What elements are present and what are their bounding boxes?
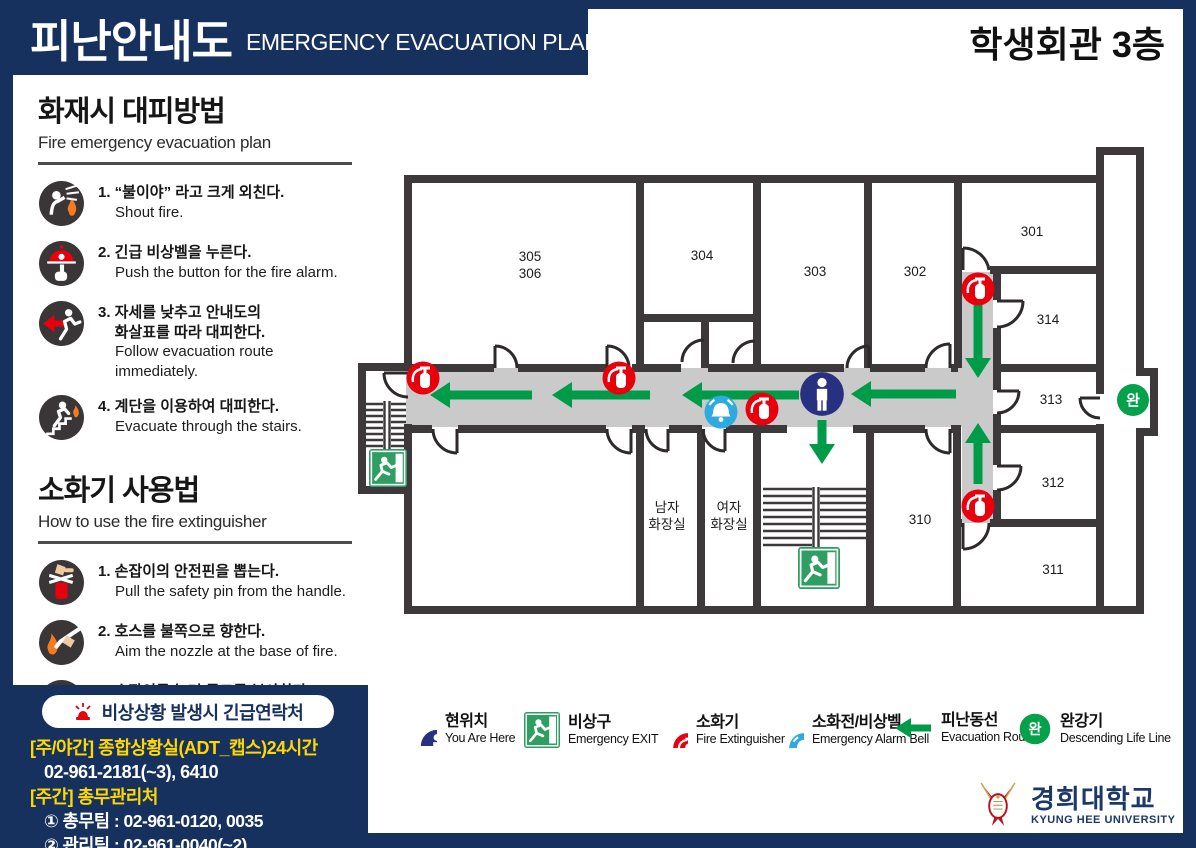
contact-item: ② 관리팀 : 02-961-0040(~2) <box>44 833 368 848</box>
step-text-en: Evacuate through the stairs. <box>115 417 302 437</box>
svg-text:완: 완 <box>1028 721 1042 738</box>
emergency-exit-icon <box>369 449 407 487</box>
room-label: 304 <box>691 248 714 263</box>
legend-life-line: 완 완강기 Descending Life Line <box>1018 712 1171 746</box>
divider <box>38 162 352 165</box>
alarm-bell-icon <box>705 396 738 429</box>
evacuation-route-arrows <box>430 303 991 484</box>
legend-label-kr: 완강기 <box>1060 713 1171 731</box>
legend-label-en: Emergency EXIT <box>568 732 658 746</box>
emergency-exit-icon <box>524 712 560 748</box>
life-line-icon: 완 <box>1018 712 1052 746</box>
room-label: 306 <box>519 266 542 281</box>
legend-fire-extinguisher: 소화기 Fire Extinguisher <box>652 712 785 748</box>
legend-label-en: You Are Here <box>445 731 515 745</box>
contact-items: ① 총무팀 : 02-961-0120, 0035 ② 관리팀 : 02-961… <box>30 809 368 848</box>
evacuation-step-3: 3. 자세를 낮추고 안내도의 화살표를 따라 대피한다. Follow eva… <box>38 300 352 381</box>
life-line-icon: 완 <box>1117 384 1149 416</box>
room-label: 312 <box>1042 475 1065 490</box>
you-are-here-icon <box>403 712 437 746</box>
step-text-en: Follow evacuation route immediately. <box>115 342 352 381</box>
extinguisher-step-1: 1. 손잡이의 안전핀을 뽑는다. Pull the safety pin fr… <box>38 559 352 606</box>
contact-line2-label: [주간] 총무관리처 <box>30 785 368 809</box>
fire-extinguisher-icon <box>407 362 440 395</box>
fire-extinguisher-icon <box>962 273 995 306</box>
step-text-en: Push the button for the fire alarm. <box>115 263 338 283</box>
contact-item: ① 총무팀 : 02-961-0120, 0035 <box>44 809 368 833</box>
legend-label-kr: 비상구 <box>568 714 658 732</box>
evacuation-step-1: 1. “불이야” 라고 크게 외친다. Shout fire. <box>38 180 352 227</box>
step-text-en: Shout fire. <box>115 203 284 223</box>
stair-treads-bottom <box>763 487 866 547</box>
route-arrow-icon <box>893 716 933 740</box>
fire-extinguisher-icon <box>962 490 995 523</box>
step-text-kr: 4. 계단을 이용하여 대피한다. <box>98 397 302 417</box>
fire-extinguisher-icon <box>652 712 688 748</box>
contact-line1-label: [주/야간] 종합상황실(ADT_캡스)24시간 <box>30 736 368 760</box>
evacuation-guide-title: 화재시 대피방법 <box>38 88 352 130</box>
room-label: 화장실 <box>710 517 747 532</box>
you-are-here-icon <box>800 372 844 416</box>
room-label: 311 <box>1042 562 1064 577</box>
room-label: 314 <box>1037 312 1060 327</box>
floor-plan: 완 305 306 304 303 302 301 314 313 312 31… <box>355 140 1167 640</box>
sidebar: 화재시 대피방법 Fire emergency evacuation plan … <box>38 88 352 754</box>
step-text-kr: 3. 자세를 낮추고 안내도의 화살표를 따라 대피한다. <box>98 303 352 342</box>
legend-evacuation-route: 피난동선 Evacuation Route <box>893 712 1035 744</box>
room-label: 310 <box>909 512 932 527</box>
siren-icon <box>73 702 93 722</box>
emergency-exit-icon <box>798 547 840 589</box>
evacuation-step-2: 2. 긴급 비상벨을 누른다. Push the button for the … <box>38 240 352 287</box>
room-label: 남자 <box>655 500 680 515</box>
step-text-kr: 1. “불이야” 라고 크게 외친다. <box>98 183 284 203</box>
legend-label-kr: 현위치 <box>445 713 515 731</box>
divider <box>38 541 352 544</box>
stair-treads-left <box>364 401 406 450</box>
fire-extinguisher-icon <box>746 393 779 426</box>
contact-heading-pill: 비상상황 발생시 긴급연락처 <box>42 695 334 728</box>
building-label: 학생회관 3층 <box>969 16 1183 68</box>
room-label: 302 <box>904 264 927 279</box>
contact-heading: 비상상황 발생시 긴급연락처 <box>102 699 304 725</box>
contact-line1-value: 02-961-2181(~3), 6410 <box>44 760 368 784</box>
stairs-icon <box>38 394 85 441</box>
evacuation-guide-subtitle: Fire emergency evacuation plan <box>38 133 352 153</box>
pull-pin-icon <box>38 559 85 606</box>
header: 피난안내도 EMERGENCY EVACUATION PLAN 학생회관 3층 <box>0 0 1196 75</box>
step-text-kr: 2. 호스를 불쪽으로 향한다. <box>98 622 338 642</box>
building-label-box: 학생회관 3층 <box>588 9 1183 75</box>
university-crest-icon <box>975 778 1021 834</box>
follow-route-icon <box>38 300 85 347</box>
room-label: 313 <box>1040 392 1063 407</box>
step-text-kr: 1. 손잡이의 안전핀을 뽑는다. <box>98 562 346 582</box>
legend-you-are-here: 현위치 You Are Here <box>403 712 515 746</box>
university-name-kr: 경희대학교 <box>1031 786 1175 813</box>
aim-nozzle-icon <box>38 619 85 666</box>
step-text-kr: 2. 긴급 비상벨을 누른다. <box>98 243 338 263</box>
page-title-kr: 피난안내도 <box>30 5 232 70</box>
emergency-contact-panel: 비상상황 발생시 긴급연락처 [주/야간] 종합상황실(ADT_캡스)24시간 … <box>0 685 368 848</box>
step-text-en: Aim the nozzle at the base of fire. <box>115 642 338 662</box>
university-logo: 경희대학교 KYUNG HEE UNIVERSITY <box>975 778 1175 834</box>
evacuation-plan-poster: 피난안내도 EMERGENCY EVACUATION PLAN 학생회관 3층 … <box>0 0 1196 848</box>
page-title: 피난안내도 EMERGENCY EVACUATION PLAN <box>30 0 600 75</box>
legend-emergency-exit: 비상구 Emergency EXIT <box>524 712 658 748</box>
room-label: 301 <box>1021 224 1044 239</box>
room-label: 303 <box>804 264 827 279</box>
extinguisher-guide-title: 소화기 사용법 <box>38 467 352 509</box>
room-label: 305 <box>519 249 542 264</box>
room-label: 여자 <box>717 500 742 515</box>
fire-extinguisher-icon <box>603 362 636 395</box>
fire-alarm-icon <box>38 240 85 287</box>
step-text-en: Pull the safety pin from the handle. <box>115 582 346 602</box>
extinguisher-step-2: 2. 호스를 불쪽으로 향한다. Aim the nozzle at the b… <box>38 619 352 666</box>
shout-fire-icon <box>38 180 85 227</box>
university-name-en: KYUNG HEE UNIVERSITY <box>1031 814 1175 826</box>
svg-text:완: 완 <box>1126 393 1140 410</box>
extinguisher-guide-subtitle: How to use the fire extinguisher <box>38 512 352 532</box>
evacuation-step-4: 4. 계단을 이용하여 대피한다. Evacuate through the s… <box>38 394 352 441</box>
alarm-bell-icon <box>768 712 804 748</box>
room-label: 화장실 <box>648 517 685 532</box>
legend-label-en: Descending Life Line <box>1060 731 1171 745</box>
page-title-en: EMERGENCY EVACUATION PLAN <box>246 29 600 56</box>
